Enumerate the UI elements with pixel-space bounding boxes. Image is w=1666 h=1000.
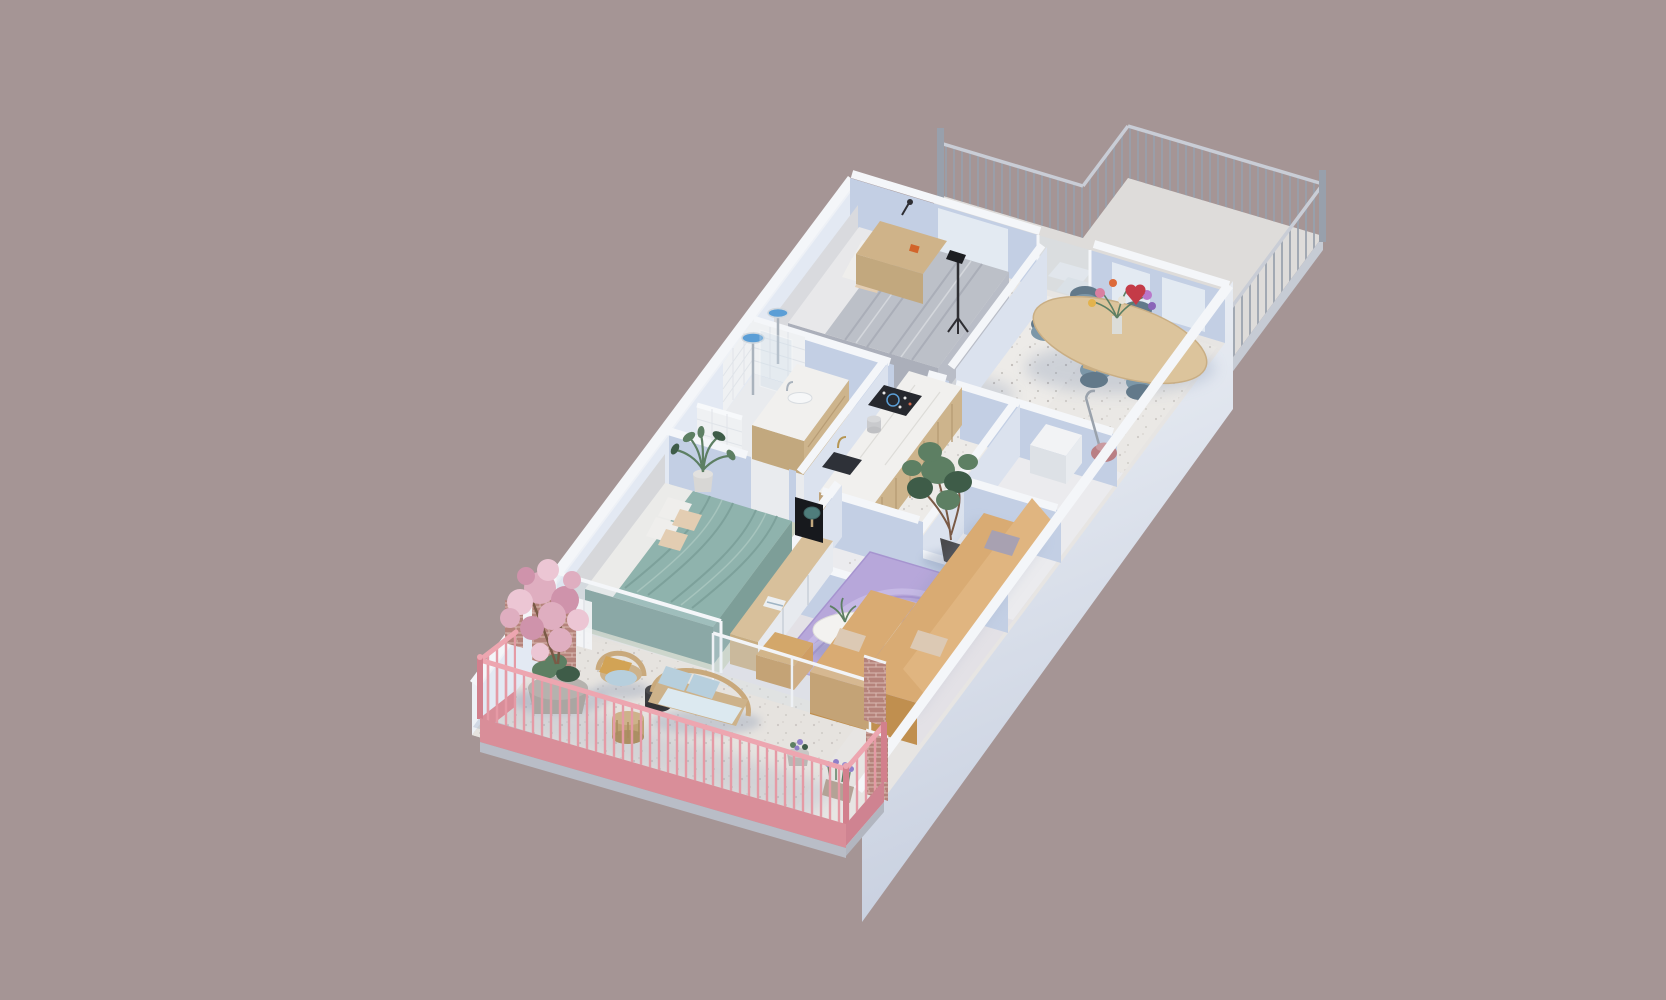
render-canvas: 3D isometric cutaway floor plan of a fur… — [0, 0, 1666, 1000]
railing-post — [937, 128, 944, 198]
railing-post — [881, 722, 887, 782]
floor-plan-render: 3D isometric cutaway floor plan of a fur… — [0, 0, 1666, 1000]
railing-post — [843, 766, 849, 826]
brick-pier — [864, 656, 886, 727]
railing-post — [1319, 170, 1326, 242]
television — [795, 497, 823, 543]
railing-post — [477, 657, 483, 719]
sink-basin — [788, 393, 812, 404]
kitchen-canister — [867, 416, 881, 434]
rain-shower-head — [768, 309, 788, 318]
